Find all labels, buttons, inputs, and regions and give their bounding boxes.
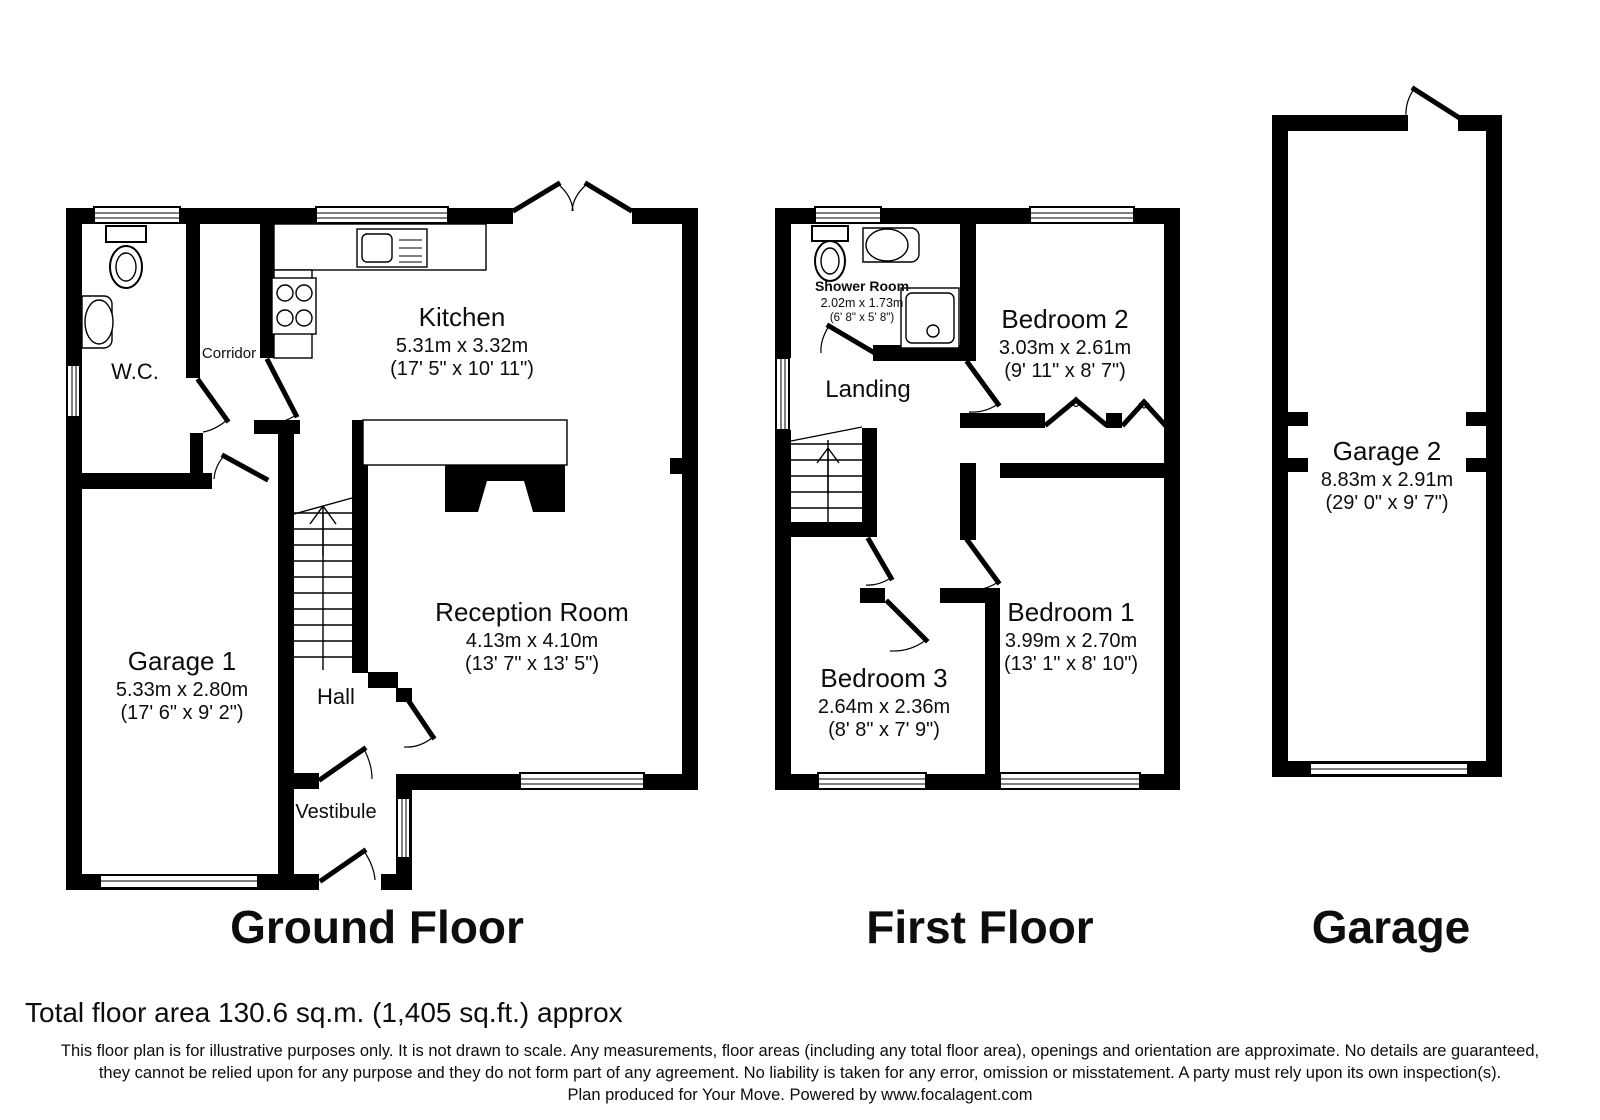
landing-window-icon — [776, 358, 789, 430]
room-dim-bedroom3-ft: (8' 8" x 7' 9") — [828, 719, 940, 741]
bedroom3-window-icon — [818, 773, 926, 789]
ground-floor-plan: W.C. Corridor Kitchen 5.31m x 3.32m (17'… — [66, 184, 698, 953]
shower-window-icon — [815, 207, 881, 223]
bedroom2-window-icon — [1030, 207, 1134, 223]
room-label-garage1: Garage 1 — [128, 646, 236, 676]
footer: Total floor area 130.6 sq.m. (1,405 sq.f… — [25, 997, 1539, 1104]
room-dim-bedroom1-ft: (13' 1" x 8' 10") — [1004, 653, 1138, 675]
room-dim-bedroom2-m: 3.03m x 2.61m — [999, 337, 1131, 359]
wc-window-icon — [94, 207, 180, 223]
kitchen-hob-icon — [272, 278, 316, 334]
room-dim-shower-m: 2.02m x 1.73m — [821, 296, 904, 310]
garage-title: Garage — [1312, 901, 1471, 953]
room-dim-shower-ft: (6' 8" x 5' 8") — [830, 312, 894, 324]
wc-basin-icon — [82, 296, 113, 348]
breakfast-bar — [363, 420, 567, 465]
total-floor-area: Total floor area 130.6 sq.m. (1,405 sq.f… — [25, 997, 623, 1028]
kitchen-sink-icon — [357, 229, 427, 267]
wc-door-icon — [199, 381, 227, 432]
vestibule-window-icon — [397, 798, 410, 858]
ground-floor-title: Ground Floor — [230, 901, 524, 953]
room-dim-garage2-ft: (29' 0" x 9' 7") — [1326, 492, 1449, 514]
shower-tray-icon — [901, 288, 959, 348]
wc-toilet-icon — [106, 226, 146, 288]
garage1-door-icon — [100, 875, 258, 888]
room-dim-kitchen-ft: (17' 5" x 10' 11") — [390, 358, 534, 380]
room-dim-bedroom3-m: 2.64m x 2.36m — [818, 696, 950, 718]
shower-door-icon — [821, 326, 873, 353]
bedroom1-door-icon — [968, 541, 998, 590]
garage-plan: Garage 2 8.83m x 2.91m (29' 0" x 9' 7") … — [1272, 89, 1502, 953]
room-dim-bedroom1-m: 3.99m x 2.70m — [1005, 630, 1137, 652]
first-stairs — [791, 427, 862, 522]
shower-basin-icon — [863, 228, 919, 262]
garage-side-door-icon — [1406, 89, 1458, 117]
room-label-bedroom2: Bedroom 2 — [1001, 304, 1128, 334]
room-label-reception: Reception Room — [435, 597, 629, 627]
room-dim-garage2-m: 8.83m x 2.91m — [1321, 469, 1453, 491]
first-floor-plan: Shower Room 2.02m x 1.73m (6' 8" x 5' 8"… — [773, 207, 1180, 953]
bedroom1-window-icon — [1000, 773, 1140, 789]
floorplan-page: W.C. Corridor Kitchen 5.31m x 3.32m (17'… — [0, 0, 1600, 1120]
chimney-breast — [445, 465, 565, 512]
room-label-hall: Hall — [317, 684, 355, 709]
room-label-corridor: Corridor — [202, 345, 256, 362]
room-label-vestibule: Vestibule — [295, 801, 376, 823]
shower-toilet-icon — [812, 226, 848, 281]
reception-window-icon — [520, 773, 644, 789]
bedroom3-door-icon — [888, 602, 926, 651]
garage2-door-icon — [1310, 763, 1468, 775]
room-dim-garage1-m: 5.33m x 2.80m — [116, 679, 248, 701]
kitchen-door-icon — [268, 361, 296, 424]
wardrobe-bifold-icon — [1047, 400, 1164, 424]
room-dim-garage1-ft: (17' 6" x 9' 2") — [121, 702, 244, 724]
disclaimer-line-3: Plan produced for Your Move. Powered by … — [567, 1086, 1032, 1104]
room-label-kitchen: Kitchen — [419, 302, 506, 332]
wc-side-window-icon — [67, 365, 80, 417]
room-label-bedroom3: Bedroom 3 — [820, 663, 947, 693]
first-floor-title: First Floor — [866, 901, 1094, 953]
room-label-shower: Shower Room — [815, 278, 909, 294]
ground-stairs — [294, 498, 352, 670]
room-label-garage2: Garage 2 — [1333, 436, 1441, 466]
kitchen-window-icon — [316, 207, 448, 223]
room-label-wc: W.C. — [111, 359, 159, 384]
landing-door-icon — [866, 540, 891, 585]
reception-door-icon — [404, 694, 433, 747]
room-dim-reception-m: 4.13m x 4.10m — [466, 630, 598, 652]
room-label-bedroom1: Bedroom 1 — [1007, 597, 1134, 627]
bedroom2-door-icon — [968, 363, 998, 412]
room-dim-kitchen-m: 5.31m x 3.32m — [396, 335, 528, 357]
room-dim-reception-ft: (13' 7" x 13' 5") — [465, 653, 599, 675]
room-dim-bedroom2-ft: (9' 11" x 8' 7") — [1004, 360, 1126, 382]
floorplan-drawing: W.C. Corridor Kitchen 5.31m x 3.32m (17'… — [0, 0, 1600, 1120]
room-label-landing: Landing — [825, 376, 910, 403]
disclaimer-line-1: This floor plan is for illustrative purp… — [61, 1042, 1539, 1060]
disclaimer-line-2: they cannot be relied upon for any purpo… — [99, 1064, 1501, 1082]
